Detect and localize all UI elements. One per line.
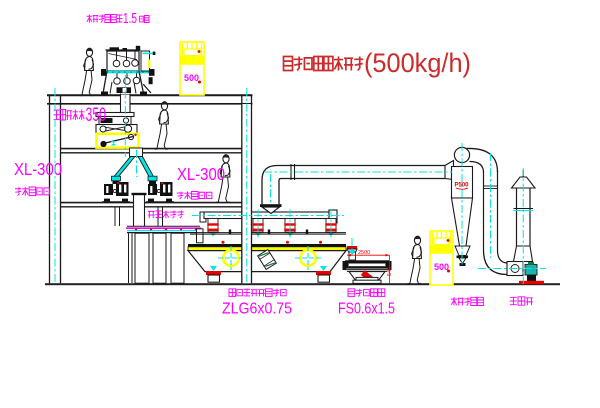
svg-text:500: 500 [184, 73, 199, 83]
svg-text:XL-300: XL-300 [177, 164, 225, 184]
svg-text:FS0.6x1.5: FS0.6x1.5 [338, 301, 395, 318]
svg-text:500: 500 [434, 262, 449, 272]
svg-text:540: 540 [387, 267, 393, 276]
svg-text:ZLG6x0.75: ZLG6x0.75 [222, 301, 292, 318]
svg-text:1.5: 1.5 [123, 10, 137, 27]
svg-text:2500: 2500 [358, 250, 370, 256]
svg-text:(500kg/h): (500kg/h) [364, 48, 471, 78]
svg-text:350: 350 [86, 105, 107, 126]
